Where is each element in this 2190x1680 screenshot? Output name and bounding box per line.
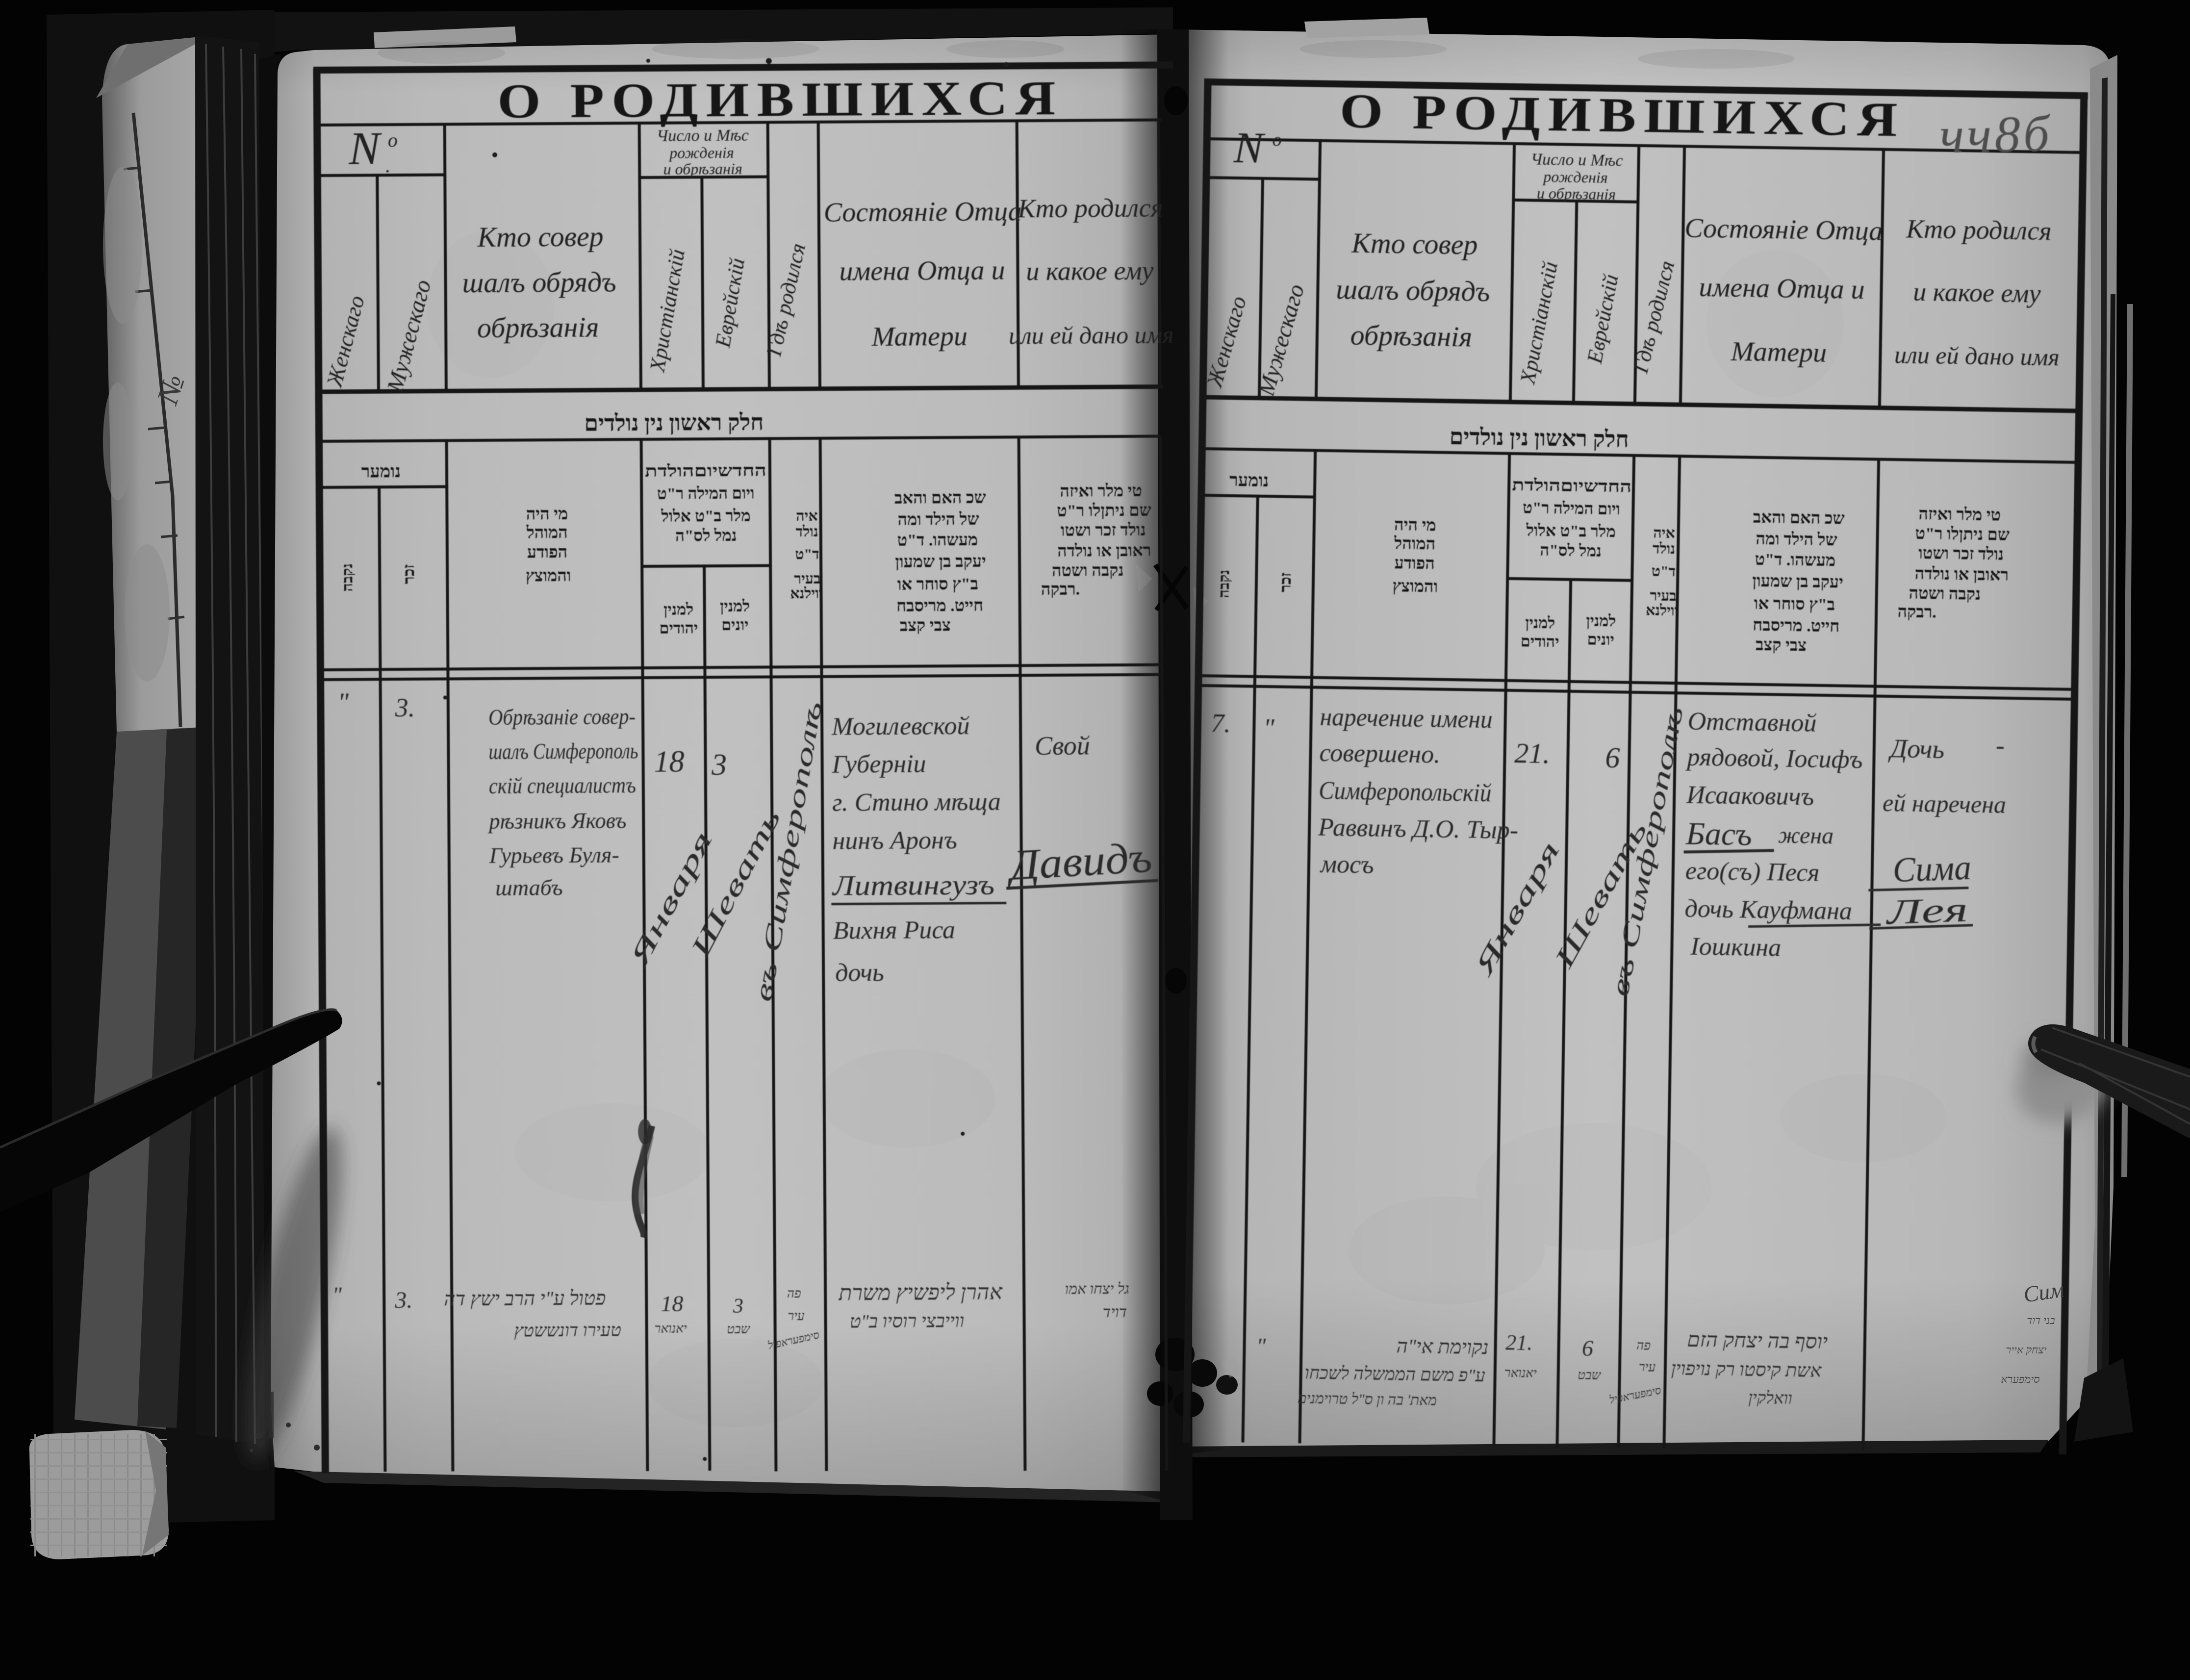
svg-text:איה: איה	[796, 508, 818, 524]
svg-text:18: 18	[654, 745, 684, 778]
svg-text:штабъ: штабъ	[495, 875, 563, 900]
svg-text:О РОДИВШИХСЯ: О РОДИВШИХСЯ	[1339, 83, 1906, 147]
svg-text:למנין: למנין	[1586, 611, 1616, 630]
svg-text:זכר: זכר	[1276, 572, 1295, 592]
svg-text:Сима: Сима	[1892, 848, 1972, 890]
svg-text:ראובן או נולדה: ראובן או נולדה	[1914, 565, 2009, 585]
svg-text:нинъ Аронъ: нинъ Аронъ	[832, 826, 957, 855]
svg-text:N: N	[348, 122, 382, 174]
svg-text:и обрѣзанія: и обрѣзанія	[1537, 184, 1616, 204]
svg-text:N: N	[1233, 124, 1266, 173]
svg-text:Число и Мѣс: Число и Мѣс	[1530, 150, 1623, 170]
svg-text:שכ האם והאב: שכ האם והאב	[894, 489, 986, 508]
svg-text:.: .	[385, 154, 390, 177]
svg-text:": "	[337, 687, 349, 717]
svg-text:יהודים: יהודים	[659, 619, 698, 636]
svg-text:ויום המילה ר"ט: ויום המילה ר"ט	[657, 485, 755, 503]
svg-text:מאת' בה ון ס"ל טרוימנים: מאת' בה ון ס"ל טרוימנים	[1298, 1390, 1437, 1408]
svg-text:Кто совер: Кто совер	[1351, 227, 1478, 261]
svg-text:Исааковичъ: Исааковичъ	[1686, 781, 1814, 811]
svg-text:21.: 21.	[1514, 737, 1551, 769]
svg-text:יעקב בן שמעון: יעקב בן שמעון	[895, 553, 986, 571]
svg-text:נולד: נולד	[1653, 540, 1675, 557]
svg-text:18: 18	[661, 1291, 683, 1316]
svg-text:של הילד ומה: של הילד ומה	[897, 510, 979, 529]
svg-text:обрѣзанія: обрѣзанія	[477, 311, 599, 344]
svg-text:גל יצחו אמו: גל יצחו אמו	[1065, 1281, 1129, 1298]
svg-text:Число и Мѣс: Число и Мѣс	[657, 127, 749, 145]
svg-text:נקבה ושטה: נקבה ושטה	[1052, 561, 1124, 580]
svg-text:шалъ обрядъ: шалъ обрядъ	[462, 266, 616, 299]
svg-text:רבקה.: רבקה.	[1041, 581, 1080, 599]
svg-text:למנין: למנין	[720, 597, 750, 615]
svg-text:צבי קצב: צבי קצב	[1756, 636, 1807, 655]
svg-text:Могилевской: Могилевской	[831, 712, 970, 741]
svg-text:טי מלר ואיזה: טי מלר ואיזה	[1918, 505, 2001, 525]
svg-text:Свой: Свой	[1035, 731, 1090, 761]
svg-text:נמל לס"ה: נמל לס"ה	[675, 527, 737, 545]
svg-text:6: 6	[1605, 741, 1620, 774]
svg-text:Литвингузъ: Литвингузъ	[832, 869, 995, 902]
svg-text:דויד: דויד	[1103, 1303, 1127, 1321]
svg-text:נולד: נולד	[796, 524, 818, 540]
svg-text:החדשיוםהולדת: החדשיוםהולדת	[645, 462, 766, 481]
svg-text:Обрѣзаніе совер-: Обрѣзаніе совер-	[488, 704, 636, 730]
svg-text:": "	[1256, 1333, 1267, 1358]
svg-text:נומער: נומער	[361, 461, 401, 481]
svg-text:совершено.: совершено.	[1319, 739, 1440, 769]
svg-text:נקבה ושטה: נקבה ושטה	[1909, 585, 1981, 604]
svg-text:ע"פ משם הממשלה לשכחו: ע"פ משם הממשלה לשכחו	[1304, 1363, 1485, 1385]
svg-text:וואלקין: וואלקין	[1748, 1389, 1792, 1408]
svg-text:шалъ обрядъ: шалъ обрядъ	[1336, 273, 1490, 307]
svg-text:נולד זכר ושטו: נולד זכר ושטו	[1061, 521, 1146, 540]
svg-text:פה: פה	[787, 1286, 801, 1300]
svg-text:Симферопольскій: Симферопольскій	[1319, 777, 1492, 808]
svg-text:ד"ט: ד"ט	[795, 546, 819, 562]
svg-text:למנין: למנין	[663, 600, 693, 618]
svg-text:ווילנא: ווילנא	[790, 585, 822, 602]
svg-text:חייט. מריסבח: חייט. מריסבח	[1753, 616, 1840, 636]
svg-text:מי היה: מי היה	[526, 505, 568, 524]
svg-text:мосъ: мосъ	[1320, 850, 1374, 879]
svg-text:Дочь: Дочь	[1887, 734, 1944, 764]
svg-text:איה: איה	[1653, 525, 1675, 541]
svg-text:מלר ב"ט אלול: מלר ב"ט אלול	[661, 508, 751, 526]
svg-text:21.: 21.	[1505, 1330, 1533, 1355]
svg-text:3.: 3.	[394, 693, 415, 722]
svg-text:של הילד ומה: של הילד ומה	[1756, 530, 1837, 550]
svg-text:יהודים: יהודים	[1521, 632, 1559, 650]
svg-text:עיר: עיר	[788, 1309, 805, 1323]
svg-text:המוהל: המוהל	[1394, 535, 1435, 553]
svg-text:рѣзникъ Яковъ: рѣзникъ Яковъ	[487, 808, 626, 834]
svg-text:обрѣзанія: обрѣзанія	[1350, 319, 1473, 353]
svg-text:его(съ) Песя: его(съ) Песя	[1685, 857, 1819, 887]
svg-text:Гурьевъ Буля-: Гурьевъ Буля-	[489, 842, 619, 868]
svg-text:זכר: זכר	[400, 564, 417, 585]
svg-text:והמוצץ: והמוצץ	[1392, 577, 1438, 596]
svg-text:אשת קיסטו רק נויפוין: אשת קיסטו רק נויפוין	[1671, 1358, 1822, 1381]
svg-text:נקבה: נקבה	[339, 563, 356, 592]
svg-text:יוסף בה יצחק הזם: יוסף בה יצחק הזם	[1687, 1329, 1828, 1353]
svg-text:נומער: נומער	[1229, 470, 1269, 490]
svg-text:עיר: עיר	[1639, 1360, 1656, 1375]
svg-text:дочь Кауфмана: дочь Кауфмана	[1684, 895, 1852, 925]
svg-text:рожденія: рожденія	[668, 144, 734, 162]
svg-text:פטול ע"י הרב ישץ דה: פטול ע"י הרב ישץ דה	[444, 1287, 606, 1310]
svg-text:6: 6	[1582, 1335, 1594, 1360]
svg-text:נקבה: נקבה	[1216, 570, 1233, 598]
svg-text:Губерніи: Губерніи	[831, 750, 926, 778]
svg-text:Матери: Матери	[1730, 336, 1827, 368]
svg-text:ей наречена: ей наречена	[1883, 789, 2007, 818]
svg-text:Состояніе Отца: Состояніе Отца	[824, 196, 1022, 228]
svg-text:": "	[1263, 713, 1275, 742]
svg-text:מעשהו. ד"ט: מעשהו. ד"ט	[897, 531, 978, 550]
svg-text:אהרן ליפשיץ משרת: אהרן ליפשיץ משרת	[838, 1280, 1003, 1305]
svg-text:о: о	[388, 129, 398, 151]
svg-text:или ей дано имя: или ей дано имя	[1009, 321, 1174, 349]
svg-text:имена Отца и: имена Отца и	[1699, 272, 1865, 305]
svg-text:המוהל: המוהל	[526, 524, 568, 542]
svg-text:Раввинъ Д.О. Тыр-: Раввинъ Д.О. Тыр-	[1318, 814, 1519, 844]
svg-text:החדשיוםהולדת: החדשיוםהולדת	[1512, 477, 1632, 496]
svg-text:и какое ему: и какое ему	[1026, 256, 1154, 286]
svg-text:רבקה.: רבקה.	[1897, 603, 1936, 621]
svg-text:מלר ב"ט אלול: מלר ב"ט אלול	[1526, 522, 1616, 541]
svg-text:צבי קצב: צבי קצב	[900, 616, 951, 635]
svg-text:שם ניתןלו ר"ט: שם ניתןלו ר"ט	[1057, 502, 1151, 520]
svg-text:נמל לס"ה: נמל לס"ה	[1540, 542, 1602, 560]
svg-text:נקוימת אי"ה: נקוימת אי"ה	[1396, 1335, 1489, 1358]
svg-text:Басъ: Басъ	[1685, 816, 1753, 853]
svg-text:имена Отца и: имена Отца и	[839, 255, 1005, 286]
svg-text:ב"ץ סוחר או: ב"ץ סוחר או	[1754, 595, 1835, 614]
svg-text:-: -	[1996, 730, 2005, 760]
svg-text:ב"ץ סוחר או: ב"ץ סוחר או	[897, 575, 979, 594]
svg-text:Кто совер: Кто совер	[477, 220, 604, 253]
svg-text:дочь: дочь	[835, 959, 884, 987]
svg-text:הפודע: הפודע	[527, 543, 568, 562]
svg-text:חייט. מריסבח: חייט. מריסבח	[896, 597, 983, 615]
svg-text:יעקב בן שמעון: יעקב בן שמעון	[1752, 572, 1843, 592]
svg-text:מעשהו. ד"ט: מעשהו. ד"ט	[1755, 551, 1835, 570]
svg-text:": "	[332, 1282, 342, 1307]
svg-text:יאנואר: יאנואר	[1504, 1366, 1537, 1380]
svg-text:חלק ראשון נין נולדים: חלק ראשון נין נולדים	[1449, 424, 1629, 452]
svg-text:למנין: למנין	[1525, 613, 1555, 632]
svg-text:чч8б: чч8б	[1939, 104, 2053, 164]
svg-text:Іошкина: Іошкина	[1690, 933, 1782, 962]
svg-text:הפודע: הפודע	[1394, 554, 1435, 573]
svg-text:יונים: יונים	[1587, 630, 1614, 648]
svg-text:נולד זכר ושטו: נולד זכר ושטו	[1918, 544, 2004, 564]
svg-text:Кто родился: Кто родился	[1017, 193, 1163, 223]
svg-text:טי מלר ואיזה: טי מלר ואיזה	[1060, 482, 1142, 501]
svg-text:рядовой, Іосифъ: рядовой, Іосифъ	[1685, 743, 1863, 774]
svg-text:или ей дано имя: или ей дано имя	[1894, 341, 2060, 371]
svg-text:наречение имени: наречение имени	[1320, 703, 1493, 734]
svg-text:3: 3	[711, 748, 727, 782]
svg-text:ווילנא: ווילנא	[1646, 602, 1679, 619]
svg-text:סימפערא: סימפערא	[2001, 1373, 2039, 1385]
svg-text:בעיר: בעיר	[794, 571, 820, 587]
svg-text:рожденія: рожденія	[1542, 168, 1608, 186]
svg-text:г. Стино мѣща: г. Стино мѣща	[832, 788, 1001, 817]
svg-text:בעיר: בעיר	[1650, 587, 1677, 604]
svg-text:7.: 7.	[1211, 708, 1231, 738]
svg-text:скій специалистъ: скій специалистъ	[489, 772, 636, 798]
svg-text:שבט: שבט	[1578, 1368, 1602, 1382]
svg-text:Кто родился: Кто родился	[1906, 214, 2052, 246]
svg-text:מי היה: מי היה	[1394, 516, 1436, 535]
svg-text:жена: жена	[1778, 822, 1834, 849]
svg-text:Состояніе Отца: Состояніе Отца	[1684, 213, 1883, 246]
svg-text:ראובן או נולדה: ראובן או נולדה	[1057, 542, 1151, 560]
svg-text:יונים: יונים	[721, 616, 749, 634]
svg-text:יאנואר: יאנואר	[655, 1321, 687, 1335]
svg-text:טעירו דונששטץ: טעירו דונששטץ	[514, 1320, 621, 1340]
svg-text:шалъ Симферополь: шалъ Симферополь	[488, 738, 638, 764]
svg-text:Вихня Риса: Вихня Риса	[833, 916, 956, 945]
svg-text:ווייבצי רוסיו ב"ט: ווייבצי רוסיו ב"ט	[850, 1311, 965, 1332]
svg-text:3.: 3.	[394, 1287, 412, 1313]
svg-text:והמוצץ: והמוצץ	[526, 567, 571, 585]
svg-text:о: о	[1272, 129, 1282, 150]
svg-text:חלק ראשון נין נולדים: חלק ראשון נין נולדים	[584, 409, 764, 435]
svg-text:שכ האם והאב: שכ האם והאב	[1753, 509, 1845, 528]
svg-text:ד"ט: ד"ט	[1652, 563, 1676, 580]
svg-text:פה: פה	[1636, 1338, 1651, 1352]
svg-text:Матери: Матери	[871, 321, 968, 352]
svg-text:יצחק אייר: יצחק אייר	[2006, 1344, 2046, 1356]
svg-text:שם ניתןלו ר"ט: שם ניתןלו ר"ט	[1915, 525, 2010, 544]
svg-text:и какое ему: и какое ему	[1913, 277, 2041, 308]
svg-text:3: 3	[733, 1295, 743, 1318]
svg-text:ויום המילה ר"ט: ויום המילה ר"ט	[1523, 499, 1620, 518]
svg-text:и обрѣзанія: и обрѣзанія	[663, 160, 742, 178]
svg-text:שבט: שבט	[727, 1322, 750, 1336]
svg-text:Отставной: Отставной	[1687, 708, 1817, 738]
svg-text:בני דוד: בני דוד	[2027, 1314, 2055, 1326]
svg-text:О РОДИВШИХСЯ: О РОДИВШИХСЯ	[497, 71, 1064, 128]
